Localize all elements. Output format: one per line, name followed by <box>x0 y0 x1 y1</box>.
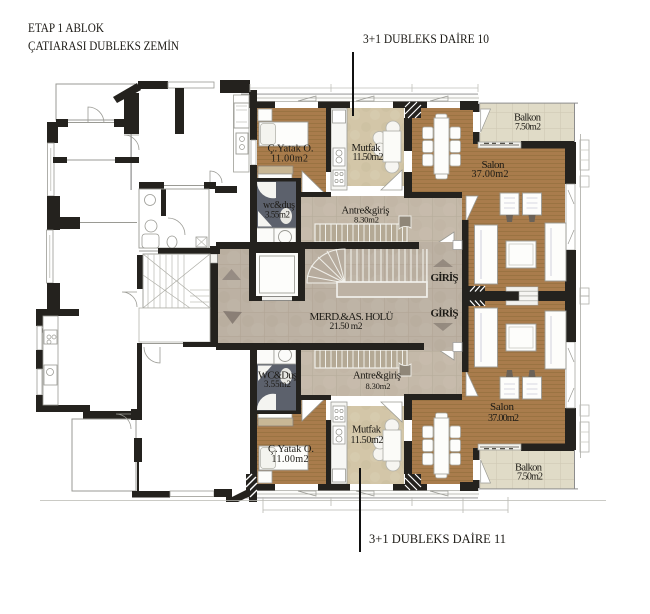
svg-text:Antre&giriş: Antre&giriş <box>353 371 401 382</box>
svg-text:Mutfak: Mutfak <box>352 425 382 436</box>
svg-text:8.30m2: 8.30m2 <box>366 381 391 391</box>
svg-text:37.00m2: 37.00m2 <box>472 169 509 180</box>
svg-text:ETAP 1 ABLOK: ETAP 1 ABLOK <box>28 20 105 35</box>
svg-text:7.50m2: 7.50m2 <box>515 123 541 133</box>
svg-text:3+1 DUBLEKS DAİRE 10: 3+1 DUBLEKS DAİRE 10 <box>363 31 489 46</box>
svg-text:ÇATIARASI DUBLEKS ZEMİN: ÇATIARASI DUBLEKS ZEMİN <box>28 38 180 53</box>
svg-text:11.00m2: 11.00m2 <box>272 454 309 465</box>
svg-text:3.55m2: 3.55m2 <box>264 379 291 389</box>
svg-text:Salon: Salon <box>490 401 515 413</box>
svg-text:7.50m2: 7.50m2 <box>517 472 543 483</box>
svg-text:11.50m2: 11.50m2 <box>353 152 384 163</box>
svg-text:GİRİŞ: GİRİŞ <box>431 308 459 320</box>
svg-text:8.30m2: 8.30m2 <box>354 215 379 225</box>
svg-text:3+1 DUBLEKS DAİRE 11: 3+1 DUBLEKS DAİRE 11 <box>369 531 506 546</box>
svg-text:11.50m2: 11.50m2 <box>351 435 384 446</box>
svg-text:GİRİŞ: GİRİŞ <box>431 272 459 284</box>
svg-text:37.00m2: 37.00m2 <box>488 413 519 424</box>
svg-text:3.55m2: 3.55m2 <box>265 210 290 220</box>
svg-text:21.50 m2: 21.50 m2 <box>330 322 363 332</box>
svg-text:11.00m2: 11.00m2 <box>271 154 308 165</box>
